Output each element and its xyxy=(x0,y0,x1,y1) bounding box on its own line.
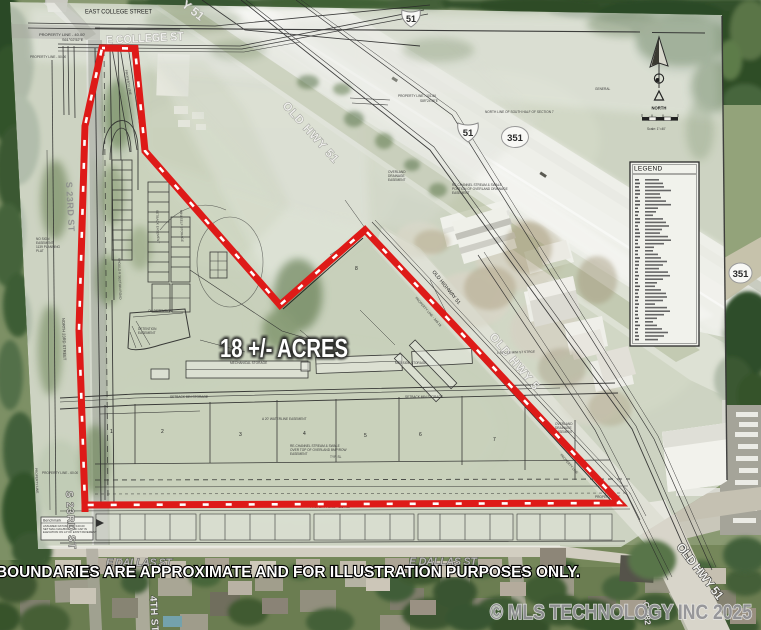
svg-text:NORTH LINE OF SOUTH HALF OF SE: NORTH LINE OF SOUTH HALF OF SECTION 7 xyxy=(485,110,554,114)
svg-text:EASEMENT: EASEMENT xyxy=(388,178,406,182)
svg-text:OH DETENTION: OH DETENTION xyxy=(148,309,173,313)
svg-text:Scale: 1"=40': Scale: 1"=40' xyxy=(647,127,666,131)
svg-text:5: 5 xyxy=(364,433,367,439)
svg-text:351: 351 xyxy=(507,133,524,144)
svg-text:EASEMENT: EASEMENT xyxy=(138,331,156,335)
svg-text:51: 51 xyxy=(406,14,416,24)
svg-text:EASEMENT: EASEMENT xyxy=(452,191,470,195)
svg-text:© MLS TECHNOLOGY INC 2025: © MLS TECHNOLOGY INC 2025 xyxy=(490,601,752,624)
svg-text:18 +/- ACRES: 18 +/- ACRES xyxy=(220,333,348,363)
svg-text:MINI SIDE STORAGE: MINI SIDE STORAGE xyxy=(395,361,426,365)
svg-text:3: 3 xyxy=(239,432,242,438)
svg-text:PROPERTY LINE - 60.00: PROPERTY LINE - 60.00 xyxy=(42,471,78,475)
svg-text:EASEMENT: EASEMENT xyxy=(290,452,308,456)
svg-text:6: 6 xyxy=(419,432,422,438)
svg-text:PROPERTY LINE - 40.00': PROPERTY LINE - 40.00' xyxy=(39,32,85,37)
svg-text:4: 4 xyxy=(303,431,306,437)
svg-text:8: 8 xyxy=(355,266,358,272)
svg-text:NORTH: NORTH xyxy=(652,106,667,111)
svg-text:S89°24'46"E: S89°24'46"E xyxy=(420,99,438,103)
svg-text:SETBACK MIN STORAGE: SETBACK MIN STORAGE xyxy=(405,395,443,399)
svg-text:A 20' WATERLINE EASEMENT: A 20' WATERLINE EASEMENT xyxy=(262,417,307,421)
svg-text:PROPERTY LINE - 50.00: PROPERTY LINE - 50.00 xyxy=(30,55,66,59)
svg-text:S61°02'52"E: S61°02'52"E xyxy=(62,38,84,42)
svg-text:LEGEND: LEGEND xyxy=(634,166,663,173)
svg-text:Benchmark: Benchmark xyxy=(43,519,61,523)
svg-text:1: 1 xyxy=(110,429,113,435)
svg-text:51: 51 xyxy=(463,128,474,139)
svg-text:BOUNDARIES ARE APPROXIMATE AND: BOUNDARIES ARE APPROXIMATE AND FOR ILLUS… xyxy=(0,564,580,581)
svg-text:PROPERTY LINE - 101.66: PROPERTY LINE - 101.66 xyxy=(398,94,436,98)
svg-text:PLAT: PLAT xyxy=(36,249,44,253)
svg-text:4TH ST: 4TH ST xyxy=(147,596,160,630)
svg-text:7: 7 xyxy=(493,437,496,443)
svg-text:351: 351 xyxy=(733,269,750,280)
svg-text:2: 2 xyxy=(161,429,164,435)
svg-text:SETBACK MIN STORAGE: SETBACK MIN STORAGE xyxy=(170,395,208,399)
svg-text:GENERAL: GENERAL xyxy=(595,87,610,91)
svg-text:EAST COLLEGE STREET: EAST COLLEGE STREET xyxy=(85,9,152,16)
svg-text:TYP. SL: TYP. SL xyxy=(330,455,342,459)
